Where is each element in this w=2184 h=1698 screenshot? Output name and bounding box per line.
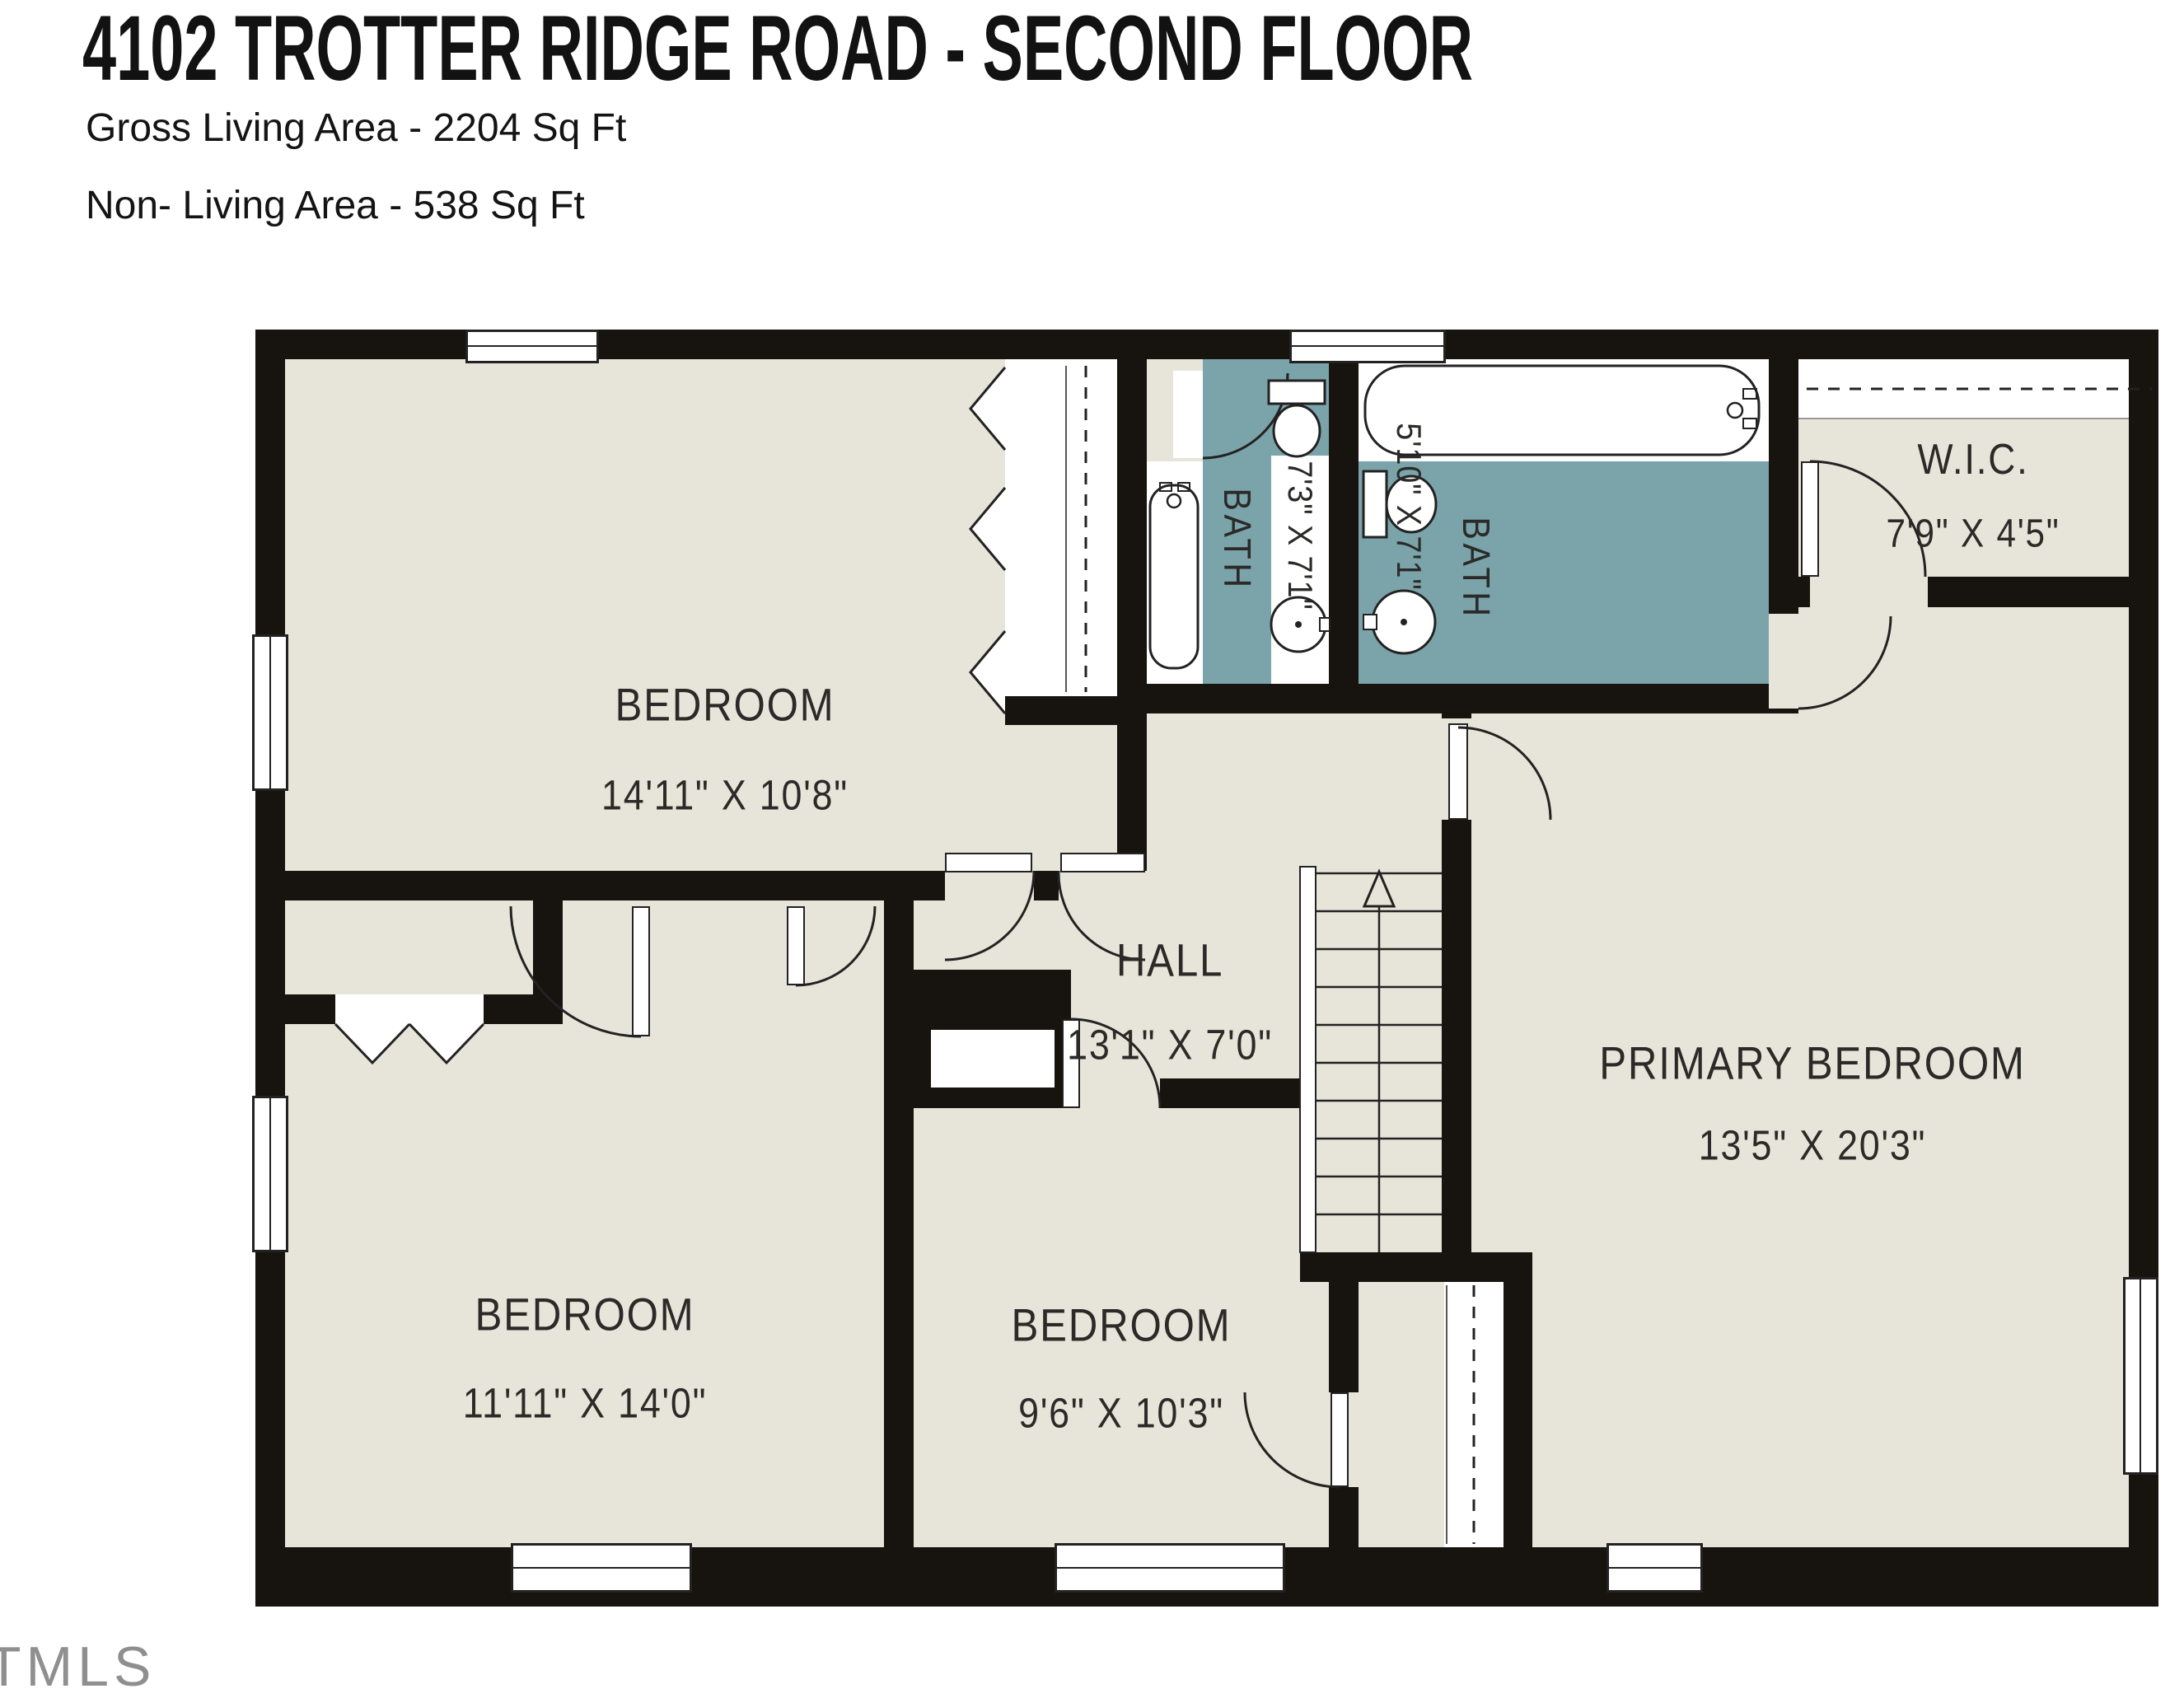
window-bedroom3-bottom <box>1055 1543 1285 1593</box>
bedroom3-label: BEDROOM <box>1012 1298 1232 1352</box>
chimney-inset <box>931 1030 1055 1088</box>
bedroom3-closet-floor <box>1359 1282 1444 1547</box>
primary-door-leaf <box>1448 723 1468 820</box>
hall-upper-join <box>1147 871 1442 900</box>
hall-bath-label: BATH <box>1215 488 1260 591</box>
floorplan: BEDROOM 14'11" X 10'8" BEDROOM 11'11" X … <box>255 330 2158 1607</box>
hall-dims: 13'1" X 7'0" <box>1067 1021 1273 1069</box>
wic-label: W.I.C. <box>1917 435 2028 484</box>
primary-bath-label: BATH <box>1454 517 1499 620</box>
hall-vestibule-door-opening <box>1059 871 1147 900</box>
primary-bedroom-label: PRIMARY BEDROOM <box>1599 1036 2025 1090</box>
hall-bath-dims: 7'3" X 7'1" <box>1280 461 1320 610</box>
bedroom1-closet-floor <box>1005 359 1117 696</box>
bedroom2-dims: 11'11" X 14'0" <box>463 1379 708 1428</box>
non-living-area: Non- Living Area - 538 Sq Ft <box>86 183 585 228</box>
floorplan-page: 4102 TROTTER RIDGE ROAD - SECOND FLOOR G… <box>0 0 2184 1698</box>
wic-door-opening <box>1810 577 1928 607</box>
window-bath-top <box>1289 330 1446 363</box>
window-bedroom1-left <box>252 634 288 791</box>
page-title: 4102 TROTTER RIDGE ROAD - SECOND FLOOR <box>82 0 1473 101</box>
room-primary-bedroom-floor <box>1471 713 2129 1282</box>
window-primary-right <box>2123 1277 2158 1475</box>
wic-shelf-band <box>1798 359 2129 419</box>
hall-alcove-door-leaf <box>787 906 805 985</box>
bedroom1-door-opening <box>945 871 1034 900</box>
stairs-lower-floor <box>1316 1108 1442 1252</box>
hall-upper-floor <box>1147 713 1442 871</box>
wic-door-leaf <box>1801 461 1819 577</box>
window-bedroom2-bottom <box>511 1543 692 1593</box>
window-primary-bottom <box>1606 1543 1703 1593</box>
primary-bedroom-floor-south <box>1532 1282 2129 1547</box>
stairs-bottom-wall <box>1300 1252 1532 1282</box>
primary-bedroom-dims: 13'5" X 20'3" <box>1699 1121 1927 1170</box>
mls-watermark: TMLS <box>0 1635 156 1698</box>
bedroom3-closet-rod-strip <box>1444 1282 1504 1547</box>
hall-label: HALL <box>1116 933 1223 987</box>
bedroom2-door-leaf <box>632 906 650 1036</box>
hall-bath-door-opening <box>1173 371 1203 458</box>
window-bedroom2-left <box>252 1096 288 1252</box>
bedroom1-nook-floor <box>1005 725 1117 871</box>
bedroom3-dims: 9'6" X 10'3" <box>1018 1389 1224 1438</box>
vestibule-door-leaf <box>1060 853 1145 872</box>
bedroom3-closet-door-leaf <box>1331 1392 1349 1487</box>
bedroom1-dims: 14'11" X 10'8" <box>601 771 849 820</box>
bedroom2-closet-opening <box>335 994 484 1024</box>
bedroom2-entry-nook <box>563 900 884 1024</box>
wic-dims: 7'9" X 4'5" <box>1886 512 2060 557</box>
bedroom2-closet-floor <box>285 900 533 994</box>
window-bedroom1-top <box>465 330 599 363</box>
gross-living-area: Gross Living Area - 2204 Sq Ft <box>86 105 626 151</box>
bedroom3-door-opening <box>1071 1078 1160 1108</box>
tub-alcove-floor <box>1147 461 1203 684</box>
room-bedroom-bottom-left-floor <box>285 1024 884 1547</box>
primary-bath-door-opening <box>1769 614 1798 709</box>
bedroom1-label: BEDROOM <box>615 678 835 732</box>
primary-bath-dims: 5'10" X 7'1" <box>1389 423 1429 590</box>
primary-nook-floor <box>1798 607 2129 713</box>
bedroom1-door-leaf <box>945 853 1032 872</box>
bedroom2-label: BEDROOM <box>475 1288 695 1341</box>
